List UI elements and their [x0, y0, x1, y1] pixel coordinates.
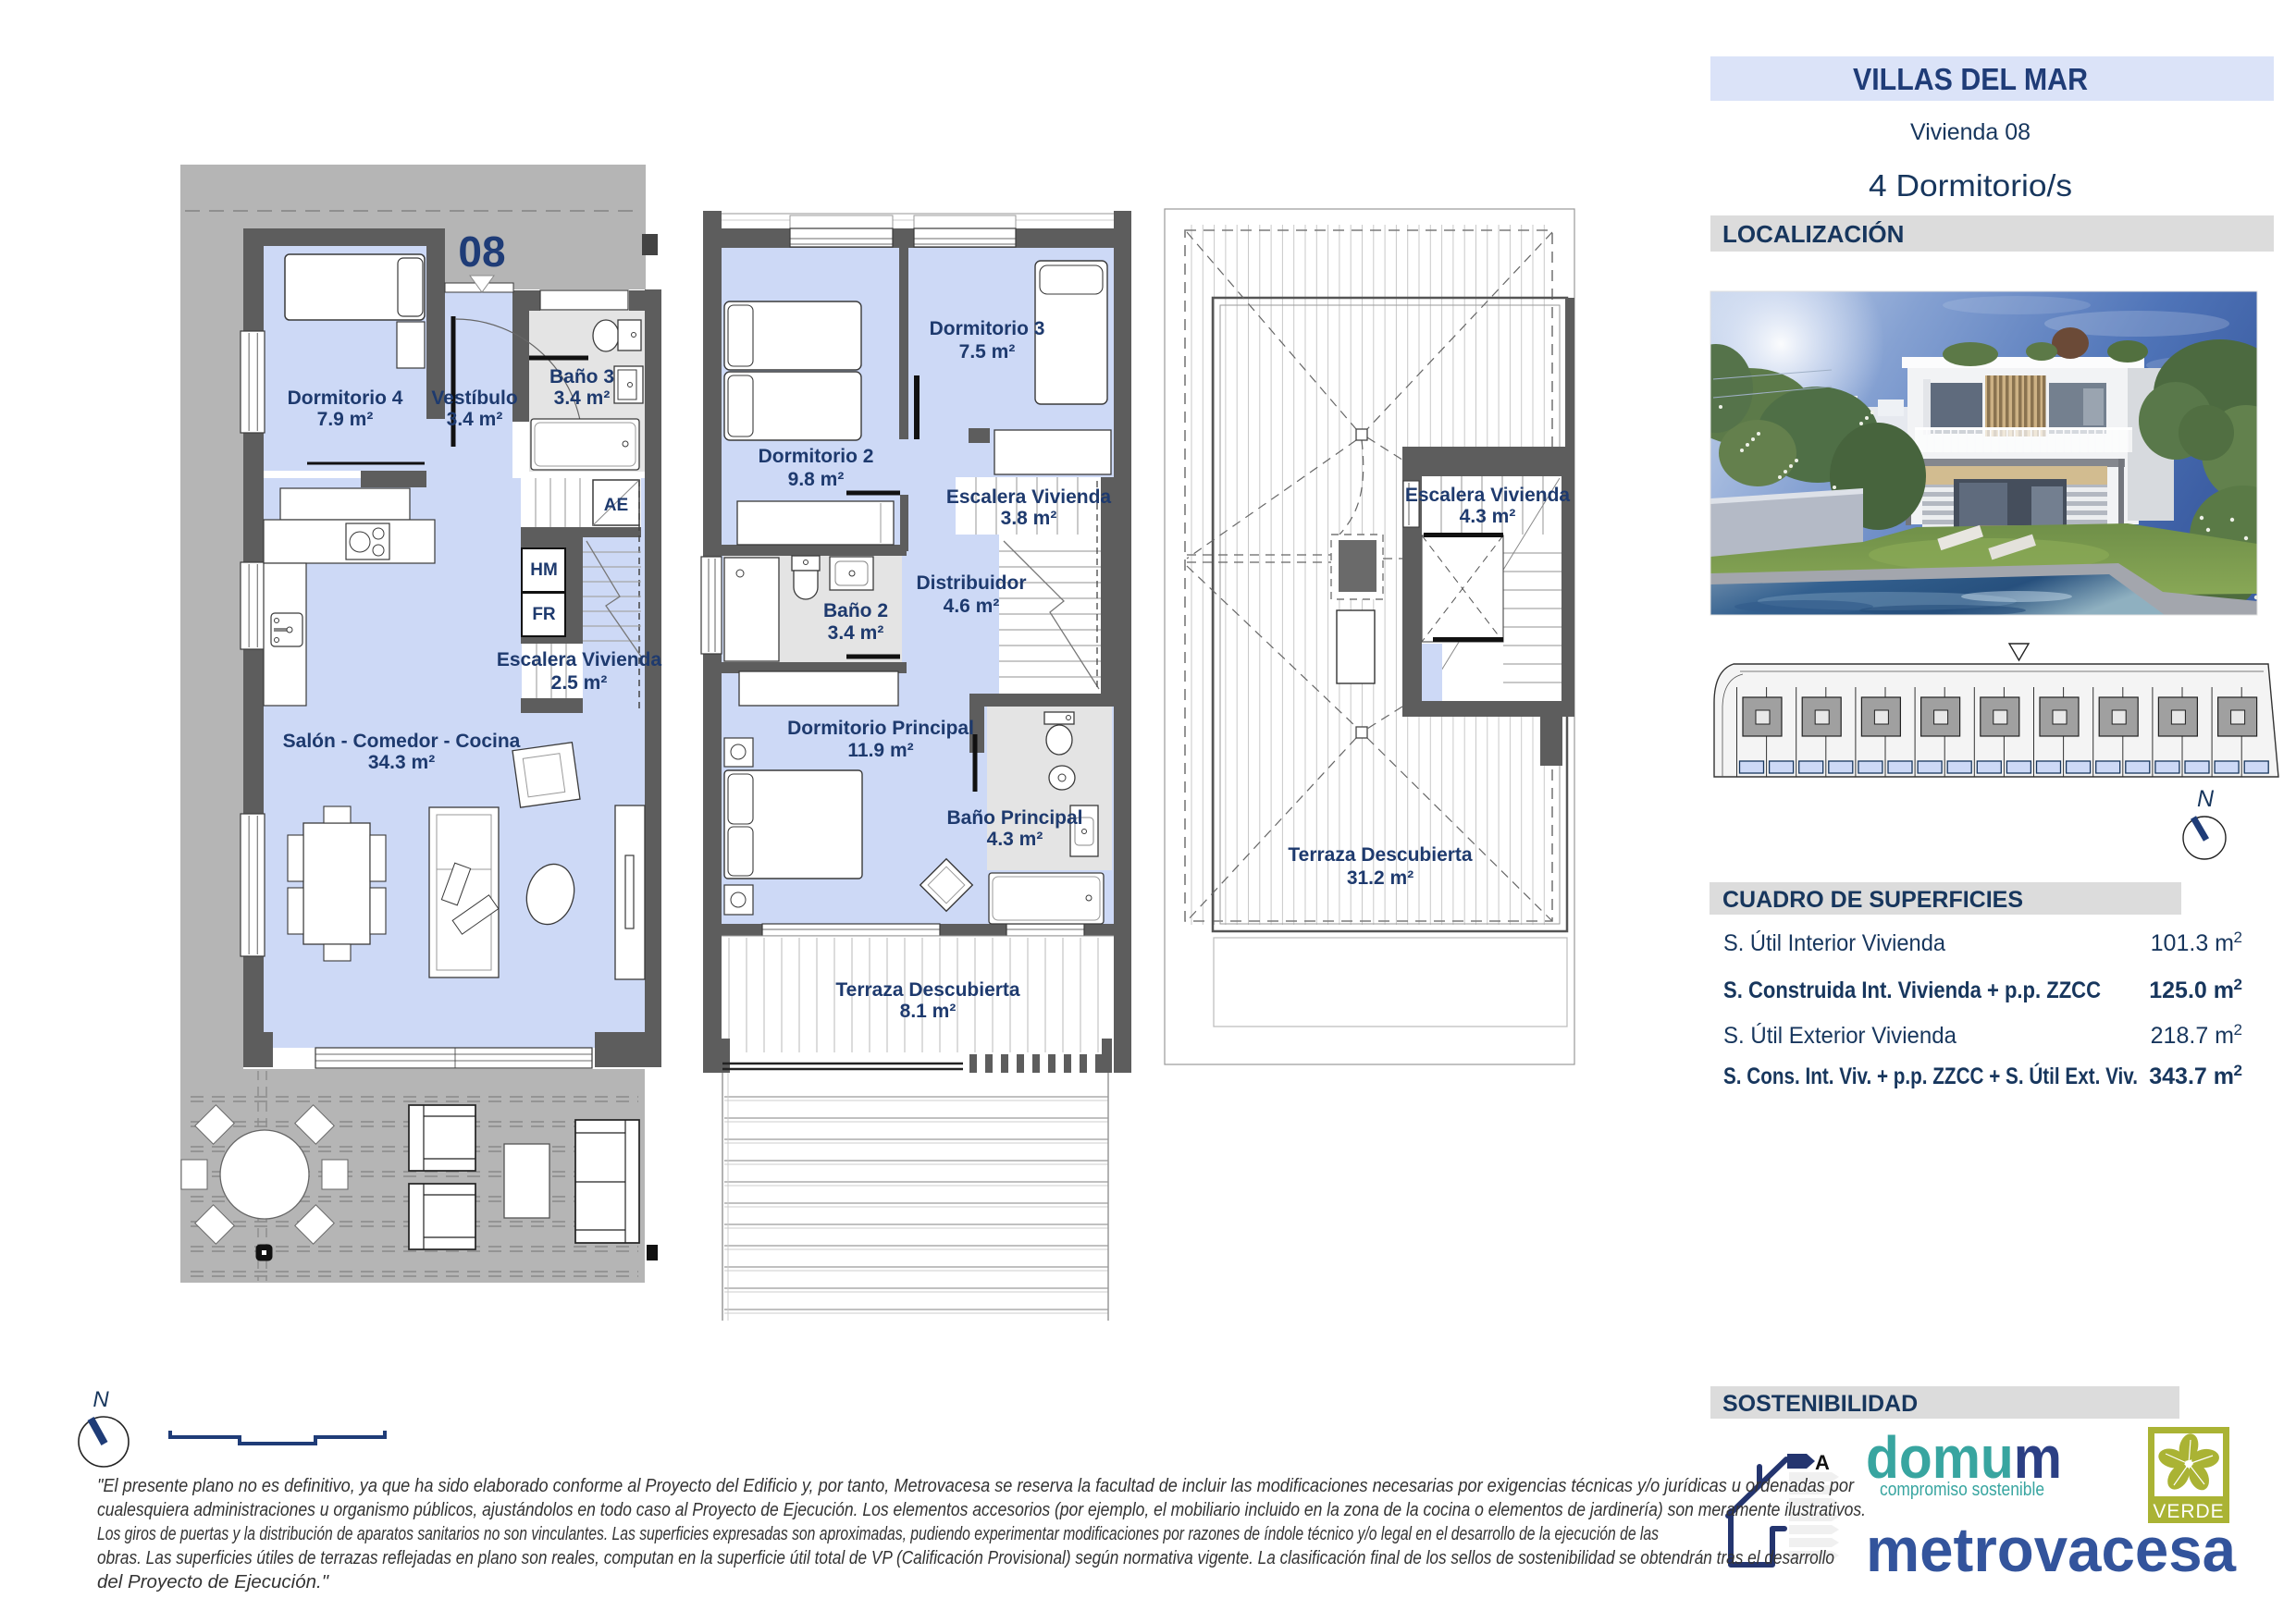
svg-text:343.7 m: 343.7 m	[2149, 1064, 2234, 1089]
svg-text:Baño Principal: Baño Principal	[946, 807, 1082, 829]
svg-text:4 Dormitorio/s: 4 Dormitorio/s	[1869, 168, 2072, 203]
svg-text:FR: FR	[532, 605, 556, 624]
svg-text:Terraza Descubierta: Terraza Descubierta	[1288, 844, 1473, 866]
svg-text:A: A	[1815, 1451, 1830, 1474]
svg-text:2: 2	[2234, 1021, 2242, 1039]
svg-text:S. Útil Interior Vivienda: S. Útil Interior Vivienda	[1723, 929, 1945, 956]
svg-text:S. Cons. Int. Viv. + p.p. ZZCC: S. Cons. Int. Viv. + p.p. ZZCC + S. Útil…	[1723, 1062, 2138, 1089]
svg-text:N: N	[2197, 786, 2215, 812]
svg-text:Salón - Comedor - Cocina: Salón - Comedor - Cocina	[283, 731, 521, 752]
svg-text:S. Construida Int. Vivienda +: S. Construida Int. Vivienda + p.p. ZZCC	[1723, 977, 2101, 1003]
svg-text:3.4 m²: 3.4 m²	[828, 622, 884, 644]
svg-text:CUADRO DE SUPERFICIES: CUADRO DE SUPERFICIES	[1722, 887, 2023, 913]
svg-text:Escalera Vivienda: Escalera Vivienda	[946, 486, 1112, 508]
svg-text:4.3 m²: 4.3 m²	[987, 829, 1043, 850]
svg-text:Baño 3: Baño 3	[549, 366, 614, 387]
svg-text:Los giros de puertas y la dist: Los giros de puertas y la distribución d…	[97, 1523, 1659, 1544]
svg-text:S. Útil Exterior Vivienda: S. Útil Exterior Vivienda	[1723, 1022, 1957, 1049]
svg-text:125.0 m: 125.0 m	[2149, 977, 2234, 1003]
svg-text:"El presente plano no es defin: "El presente plano no es definitivo, ya …	[97, 1475, 1855, 1496]
svg-text:3.8 m²: 3.8 m²	[1001, 508, 1057, 529]
svg-text:Dormitorio 2: Dormitorio 2	[759, 446, 874, 467]
svg-text:101.3 m: 101.3 m	[2151, 930, 2234, 956]
svg-text:Escalera Vivienda: Escalera Vivienda	[1405, 485, 1571, 506]
svg-text:2: 2	[2234, 976, 2242, 993]
svg-text:Vestíbulo: Vestíbulo	[431, 387, 517, 409]
svg-text:N: N	[93, 1387, 109, 1412]
svg-text:4.3 m²: 4.3 m²	[1460, 506, 1516, 527]
svg-text:4.6 m²: 4.6 m²	[944, 596, 1000, 617]
svg-text:SOSTENIBILIDAD: SOSTENIBILIDAD	[1722, 1391, 1918, 1417]
svg-text:Escalera Vivienda: Escalera Vivienda	[497, 649, 662, 670]
svg-text:HM: HM	[530, 560, 558, 580]
svg-text:9.8 m²: 9.8 m²	[788, 469, 845, 490]
svg-text:2: 2	[2234, 928, 2242, 946]
svg-text:AE: AE	[604, 496, 628, 515]
svg-text:Vivienda 08: Vivienda 08	[1910, 119, 2031, 145]
svg-text:31.2 m²: 31.2 m²	[1347, 867, 1413, 889]
svg-text:11.9 m²: 11.9 m²	[847, 740, 913, 761]
svg-text:cualesquiera administraciones: cualesquiera administraciones u organism…	[97, 1499, 1866, 1520]
svg-text:Dormitorio 4: Dormitorio 4	[288, 387, 403, 409]
svg-text:LOCALIZACIÓN: LOCALIZACIÓN	[1722, 220, 1904, 248]
svg-text:7.9 m²: 7.9 m²	[317, 409, 374, 430]
svg-text:Terraza Descubierta: Terraza Descubierta	[835, 979, 1020, 1001]
svg-text:3.4 m²: 3.4 m²	[554, 387, 611, 409]
svg-text:Baño 2: Baño 2	[823, 600, 888, 621]
svg-text:8.1 m²: 8.1 m²	[900, 1001, 957, 1022]
svg-text:2: 2	[2234, 1062, 2242, 1079]
svg-text:metrovacesa: metrovacesa	[1866, 1515, 2237, 1585]
svg-text:obras. Las superficies útiles: obras. Las superficies útiles de terraza…	[97, 1547, 1834, 1568]
svg-text:Dormitorio 3: Dormitorio 3	[930, 318, 1045, 339]
svg-text:VERDE: VERDE	[2153, 1501, 2224, 1522]
svg-text:3.4 m²: 3.4 m²	[447, 409, 503, 430]
svg-text:compromiso sostenible: compromiso sostenible	[1880, 1480, 2044, 1500]
svg-text:08: 08	[458, 227, 505, 276]
svg-text:del Proyecto de Ejecución.": del Proyecto de Ejecución."	[97, 1571, 330, 1592]
svg-text:VILLAS DEL MAR: VILLAS DEL MAR	[1853, 62, 2088, 96]
svg-text:7.5 m²: 7.5 m²	[959, 341, 1016, 363]
svg-text:34.3 m²: 34.3 m²	[368, 752, 435, 773]
svg-text:Dormitorio Principal: Dormitorio Principal	[787, 718, 974, 739]
svg-text:2.5 m²: 2.5 m²	[551, 672, 608, 694]
svg-text:Distribuidor: Distribuidor	[917, 572, 1027, 594]
svg-text:218.7 m: 218.7 m	[2151, 1023, 2234, 1049]
